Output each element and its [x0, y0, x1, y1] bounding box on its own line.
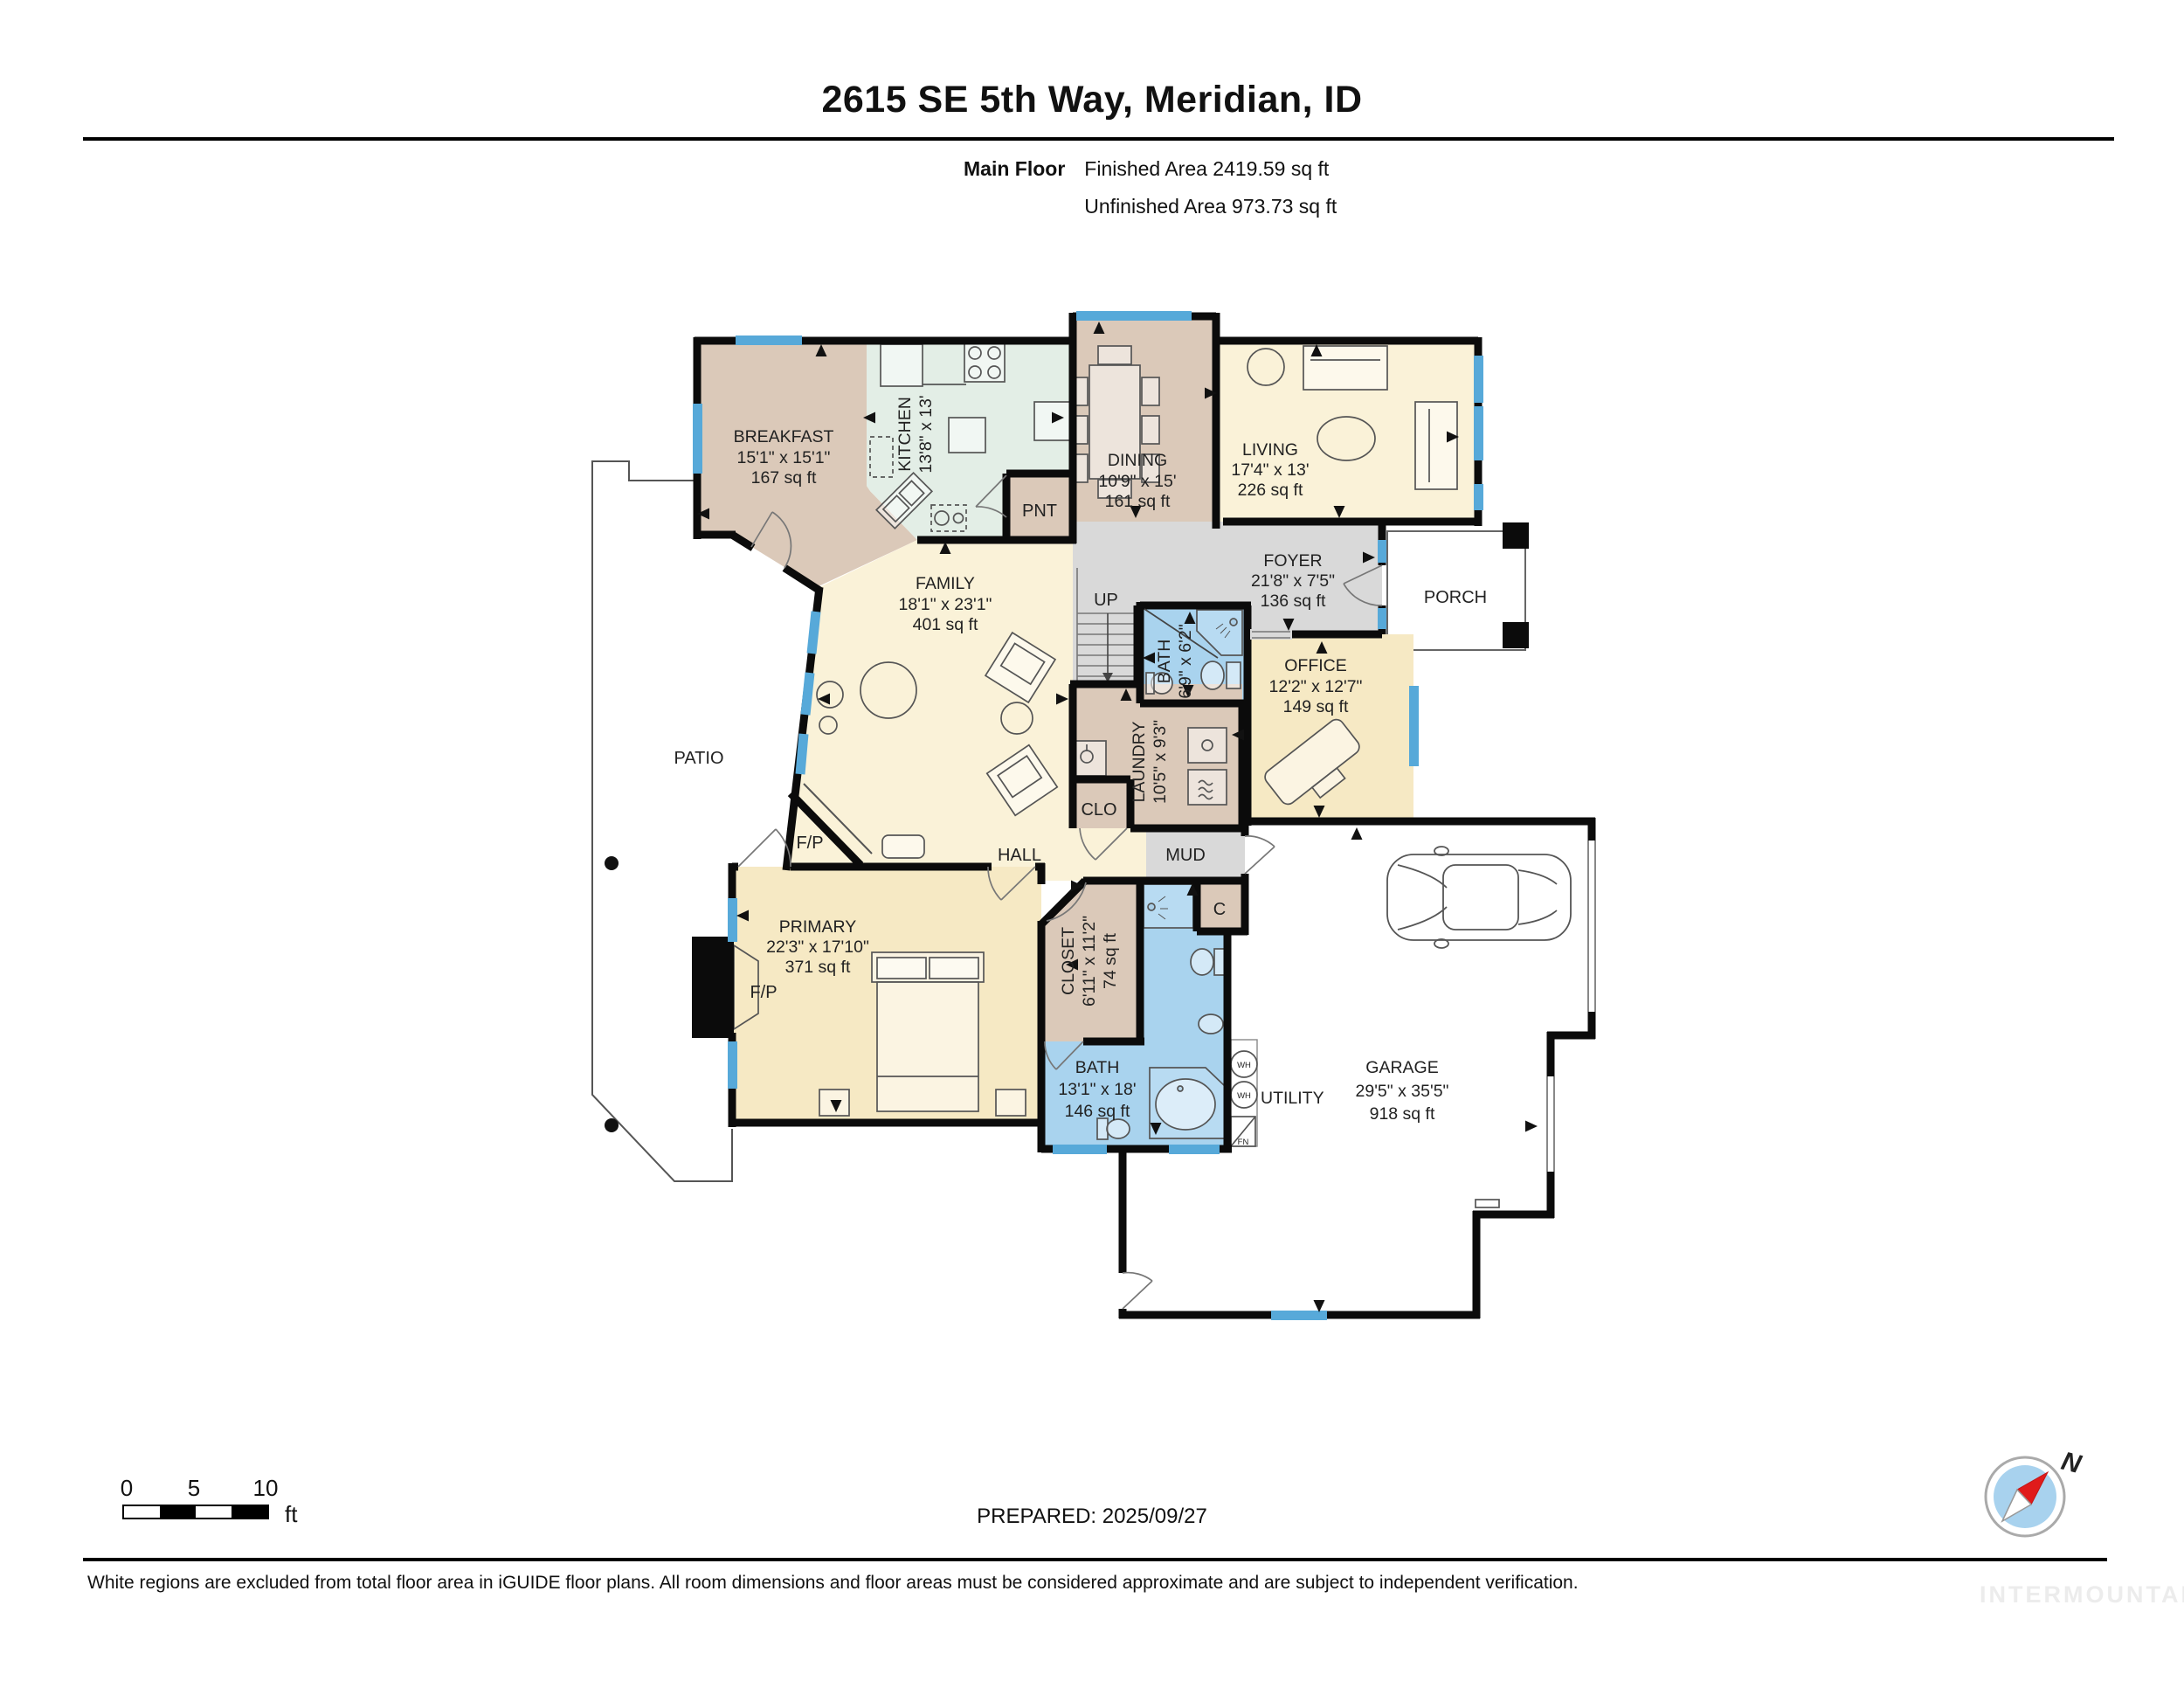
label-family: FAMILY: [916, 574, 975, 593]
label-hall: HALL: [998, 846, 1041, 865]
label-utility: UTILITY: [1261, 1089, 1324, 1108]
label-living-dims: 17'4" x 13': [1231, 460, 1309, 480]
label-primary-bath: BATH: [1075, 1058, 1120, 1077]
floor-summary: Main Floor Finished Area 2419.59 sq ft U…: [964, 157, 1337, 218]
label-wh-2: WH: [1237, 1091, 1251, 1101]
header-divider: [83, 137, 2114, 141]
label-dining-area: 161 sq ft: [1105, 492, 1171, 511]
finished-area: Finished Area 2419.59 sq ft: [1084, 157, 1337, 181]
label-foyer-area: 136 sq ft: [1261, 591, 1326, 611]
label-primary-fireplace: F/P: [750, 983, 777, 1002]
brand-watermark: INTERMOUNTAIN: [1980, 1581, 2184, 1608]
footer-divider: [83, 1558, 2107, 1561]
label-primary: PRIMARY: [779, 917, 857, 937]
label-clo: CLO: [1081, 800, 1116, 820]
patio-post: [605, 856, 619, 870]
label-closet-area: 74 sq ft: [1101, 932, 1120, 989]
label-family-fireplace: F/P: [796, 834, 823, 853]
label-mud: MUD: [1165, 846, 1206, 865]
label-pantry: PNT: [1022, 502, 1057, 521]
page-title: 2615 SE 5th Way, Meridian, ID: [0, 79, 2184, 121]
label-breakfast-dims: 15'1" x 15'1": [737, 448, 831, 467]
disclaimer-text: White regions are excluded from total fl…: [87, 1573, 2062, 1594]
label-laundry-dims: 10'5" x 9'3": [1151, 720, 1170, 804]
label-garage-area: 918 sq ft: [1370, 1104, 1435, 1124]
label-kitchen: KITCHEN: [895, 397, 915, 472]
label-garage-dims: 29'5" x 35'5": [1356, 1082, 1449, 1101]
scale-5: 5: [188, 1475, 200, 1502]
patio-post: [605, 1118, 619, 1132]
floor-label: Main Floor: [964, 157, 1065, 218]
scale-0: 0: [121, 1475, 133, 1502]
primary-fireplace: [692, 937, 734, 1038]
label-office-area: 149 sq ft: [1283, 697, 1349, 716]
label-half-bath-dims: 6'9" x 6'2": [1176, 624, 1195, 698]
label-office-dims: 12'2" x 12'7": [1269, 677, 1363, 696]
patio-outline: [592, 461, 732, 1181]
label-foyer: FOYER: [1263, 551, 1322, 571]
label-primary-bath-dims: 13'1" x 18': [1058, 1080, 1136, 1099]
label-garage: GARAGE: [1365, 1058, 1438, 1077]
label-office: OFFICE: [1284, 656, 1347, 675]
floor-plan-page: 2615 SE 5th Way, Meridian, ID Main Floor…: [0, 0, 2184, 1688]
label-primary-dims: 22'3" x 17'10": [766, 937, 869, 957]
label-living-area: 226 sq ft: [1238, 481, 1303, 500]
label-half-bath: BATH: [1155, 640, 1174, 684]
label-family-dims: 18'1" x 23'1": [899, 595, 992, 614]
label-dining: DINING: [1108, 451, 1167, 470]
label-dining-dims: 10'9" x 15': [1098, 472, 1176, 491]
label-breakfast: BREAKFAST: [734, 427, 834, 446]
label-up: UP: [1094, 591, 1118, 610]
label-laundry: LAUNDRY: [1130, 722, 1149, 803]
label-wh-1: WH: [1237, 1061, 1251, 1070]
label-porch: PORCH: [1424, 588, 1487, 607]
label-patio: PATIO: [674, 749, 723, 768]
label-kitchen-dims: 13'8" x 13': [916, 395, 936, 473]
scale-10: 10: [253, 1475, 279, 1502]
label-closet-dims: 6'11" x 11'2": [1080, 916, 1099, 1007]
prepared-date: PREPARED: 2025/09/27: [0, 1505, 2184, 1529]
label-primary-bath-area: 146 sq ft: [1065, 1102, 1130, 1121]
label-living: LIVING: [1242, 440, 1298, 460]
compass-north-label: N: [2058, 1447, 2084, 1480]
label-breakfast-area: 167 sq ft: [751, 468, 817, 488]
room-porch: [1387, 522, 1529, 650]
label-closet: CLOSET: [1059, 927, 1078, 995]
compass-icon: N: [1967, 1437, 2090, 1555]
label-fn: FN: [1238, 1138, 1249, 1147]
label-family-area: 401 sq ft: [913, 615, 978, 634]
label-primary-area: 371 sq ft: [785, 958, 851, 977]
unfinished-area: Unfinished Area 973.73 sq ft: [1084, 195, 1337, 218]
floor-plan: BREAKFAST 15'1" x 15'1" 167 sq ft KITCHE…: [568, 288, 1634, 1389]
label-foyer-dims: 21'8" x 7'5": [1251, 571, 1335, 591]
label-closet-c: C: [1213, 900, 1226, 919]
